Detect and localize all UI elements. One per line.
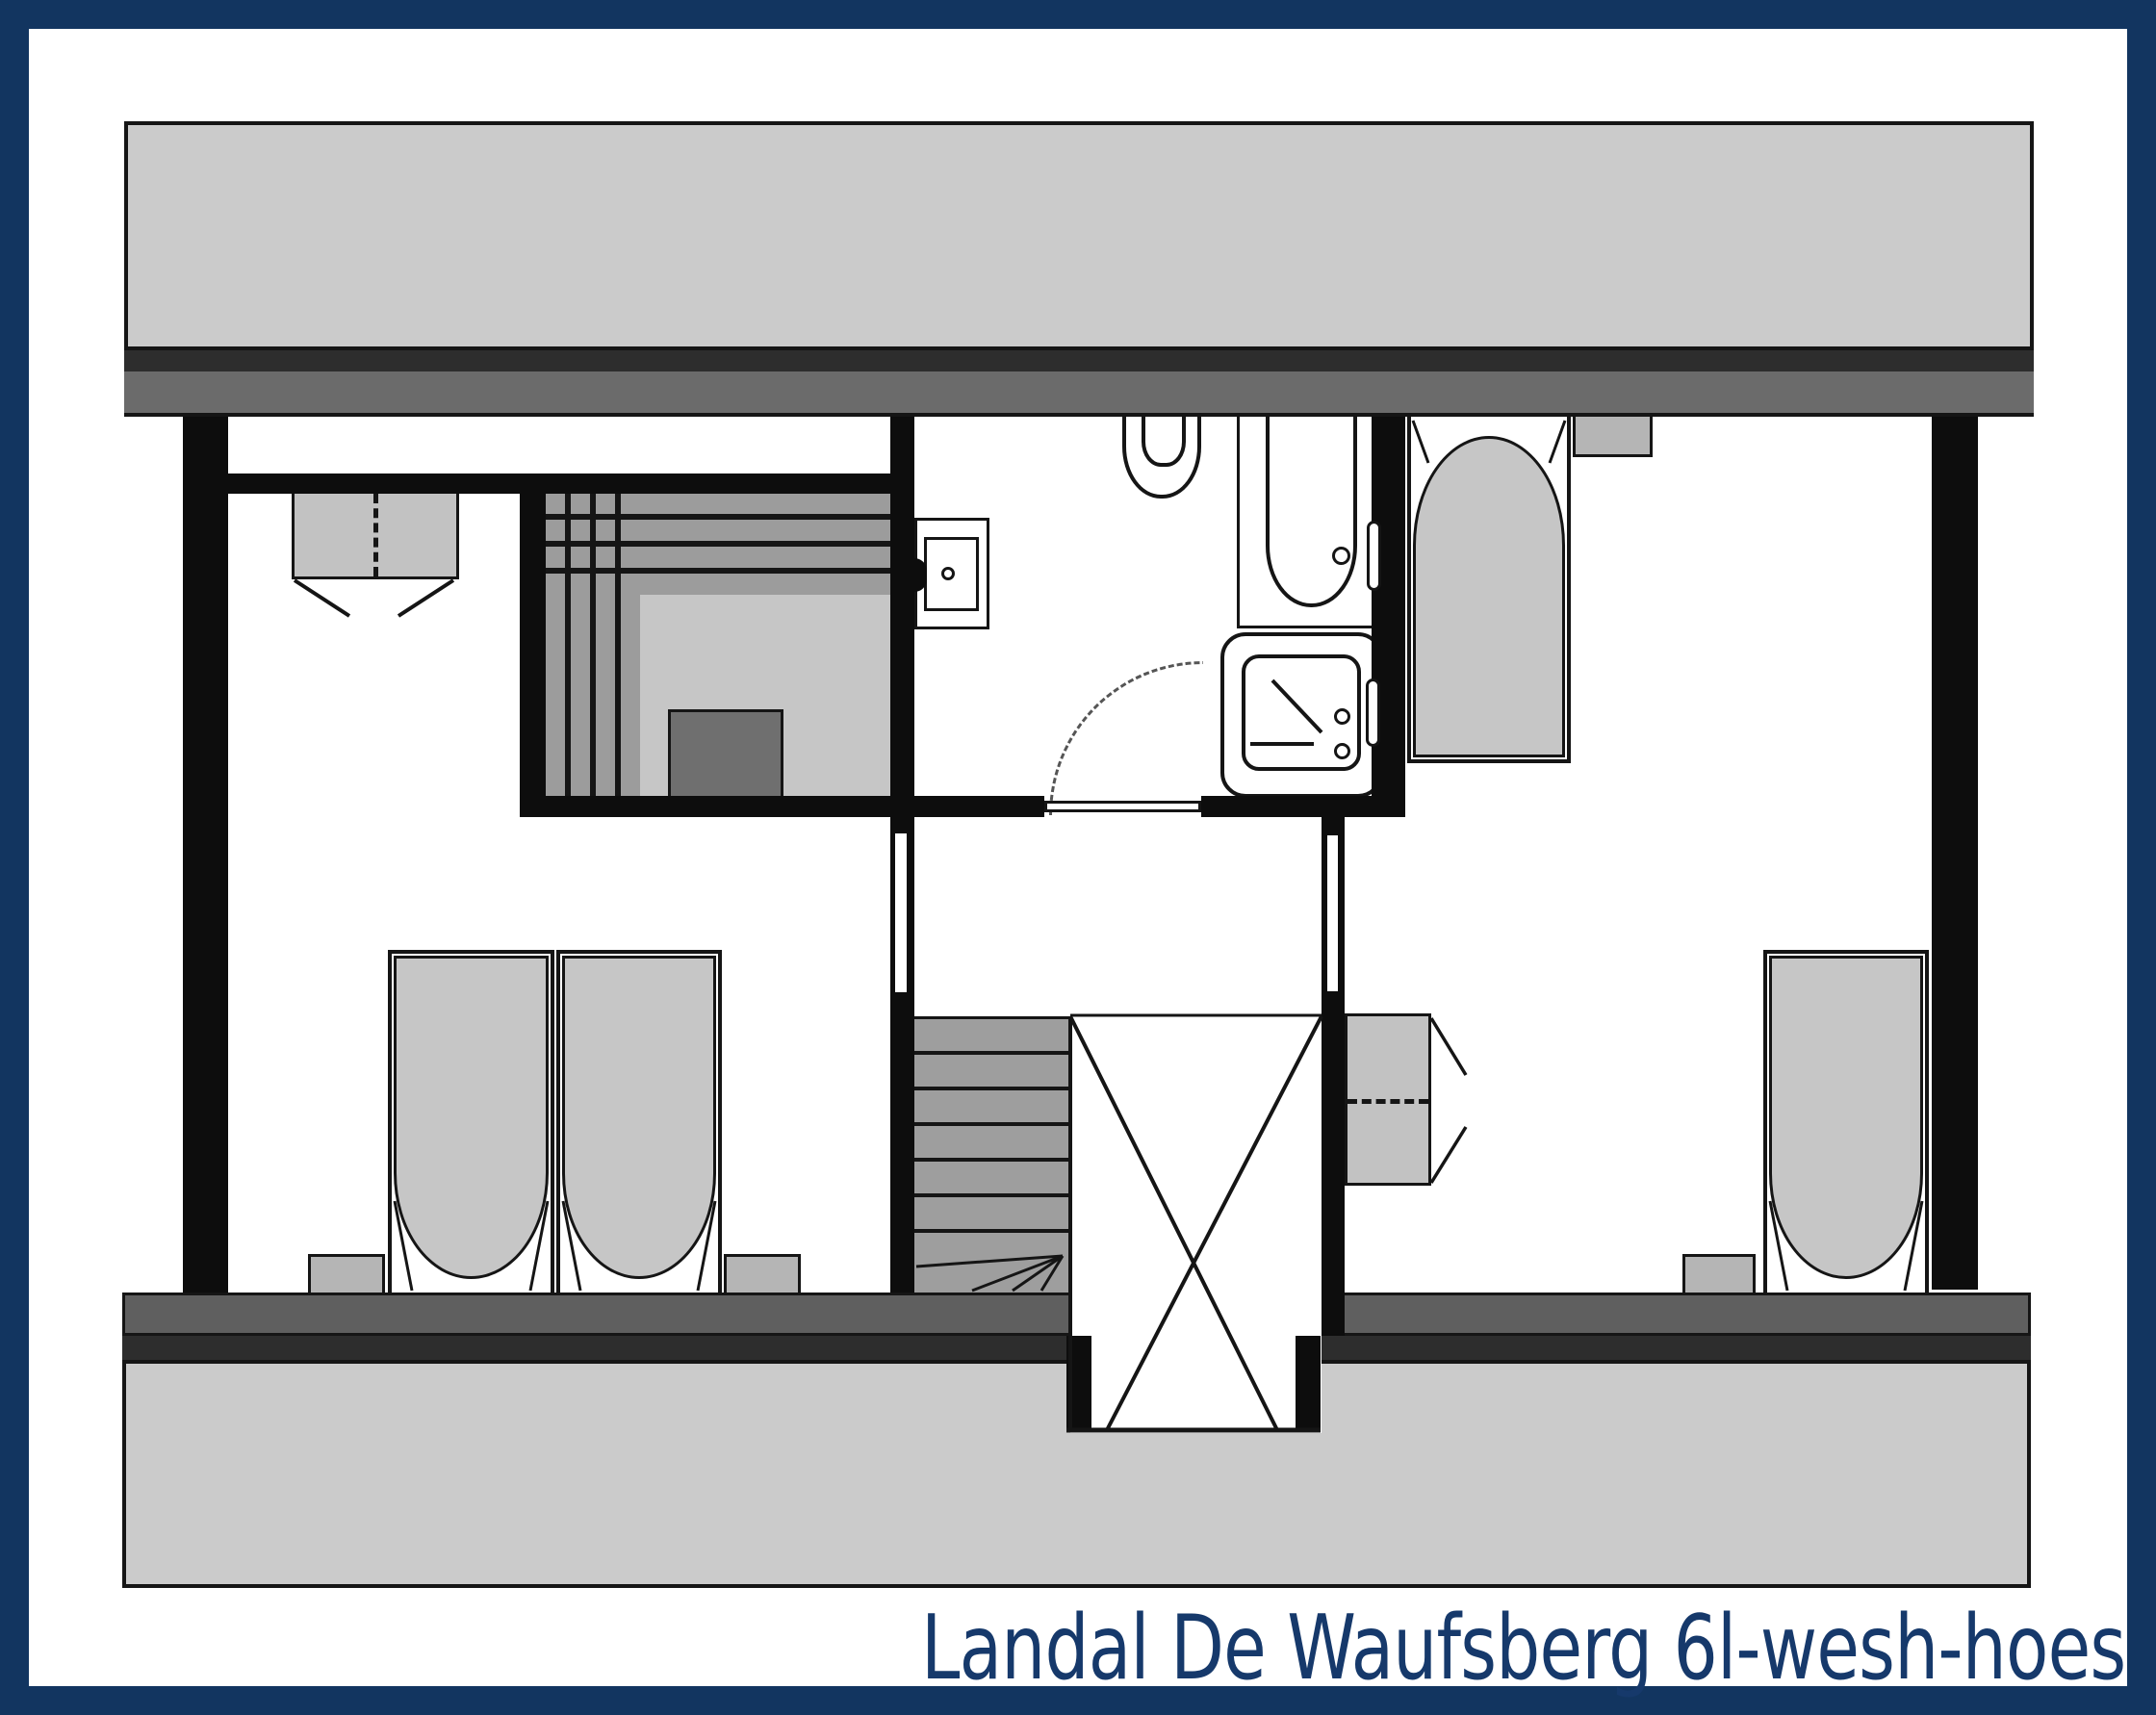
wall-column-right — [1932, 417, 1978, 1290]
wall-column-left — [183, 417, 228, 1293]
wall-hall-left — [890, 417, 914, 1293]
bedroom-door-right-opening — [1327, 835, 1338, 991]
void-wall-stub-right — [1296, 1336, 1321, 1432]
single-bed-2 — [556, 950, 722, 1293]
washbasin-mixer-icon — [1366, 678, 1380, 747]
wardrobe-left-bedroom — [292, 494, 459, 579]
wardrobe-door-line — [1431, 1127, 1466, 1183]
stairwell-void — [1070, 1013, 1322, 1433]
wardrobe-dashed-rail — [373, 494, 378, 576]
duvet — [1769, 956, 1923, 1279]
single-bed-4 — [1407, 417, 1571, 763]
wall-shelf — [1573, 417, 1653, 457]
bathtub-tap-knob — [1332, 547, 1350, 565]
duvet — [562, 956, 716, 1279]
washbasin-tap-knob-1 — [1334, 708, 1350, 725]
bedroom-door-left-opening — [895, 833, 907, 992]
plan-title: Landal De Waufsberg 6l-wesh-hoes — [921, 1601, 2125, 1696]
nightstand-1 — [308, 1254, 385, 1293]
eaves-strip-top — [124, 371, 2034, 417]
sauna-room — [546, 493, 890, 817]
roof-band-top — [124, 121, 2034, 350]
wardrobe-dashed-rail — [1347, 1099, 1428, 1104]
wall-bathroom-bottom-right — [1201, 796, 1405, 817]
roof-edge-dark-strip-top — [124, 350, 2034, 371]
sauna-wall-left — [520, 493, 546, 817]
wardrobe-door-line — [1431, 1018, 1466, 1075]
nightstand-3 — [1682, 1254, 1756, 1293]
wardrobe-door-line — [295, 580, 349, 616]
stair-treads — [914, 1019, 1068, 1237]
shower-drain — [941, 567, 955, 580]
washbasin-tap-knob-2 — [1334, 743, 1350, 759]
single-bed-1 — [388, 950, 554, 1293]
wall-sauna-bathroom-bottom — [520, 796, 1044, 817]
wardrobe-right-bedroom — [1345, 1013, 1431, 1186]
sauna-bench-corner-grid — [546, 493, 640, 595]
bathroom-door-leaf — [1044, 801, 1201, 812]
single-bed-3 — [1763, 950, 1929, 1293]
duvet — [1413, 436, 1565, 757]
void-wall-stub-left — [1066, 1336, 1091, 1432]
wall-hall-right — [1322, 796, 1345, 1336]
toilet-bowl — [1142, 417, 1186, 467]
staircase — [914, 1016, 1068, 1293]
nightstand-2 — [724, 1254, 801, 1293]
wall-top-left-rooms — [228, 474, 914, 494]
floorplan-page: Landal De Waufsberg 6l-wesh-hoes — [0, 0, 2156, 1715]
wardrobe-door-line — [398, 580, 453, 616]
duvet — [394, 956, 549, 1279]
bathtub-mixer-icon — [1367, 521, 1381, 591]
bathtub-basin — [1266, 417, 1357, 607]
sauna-stove — [668, 709, 783, 805]
